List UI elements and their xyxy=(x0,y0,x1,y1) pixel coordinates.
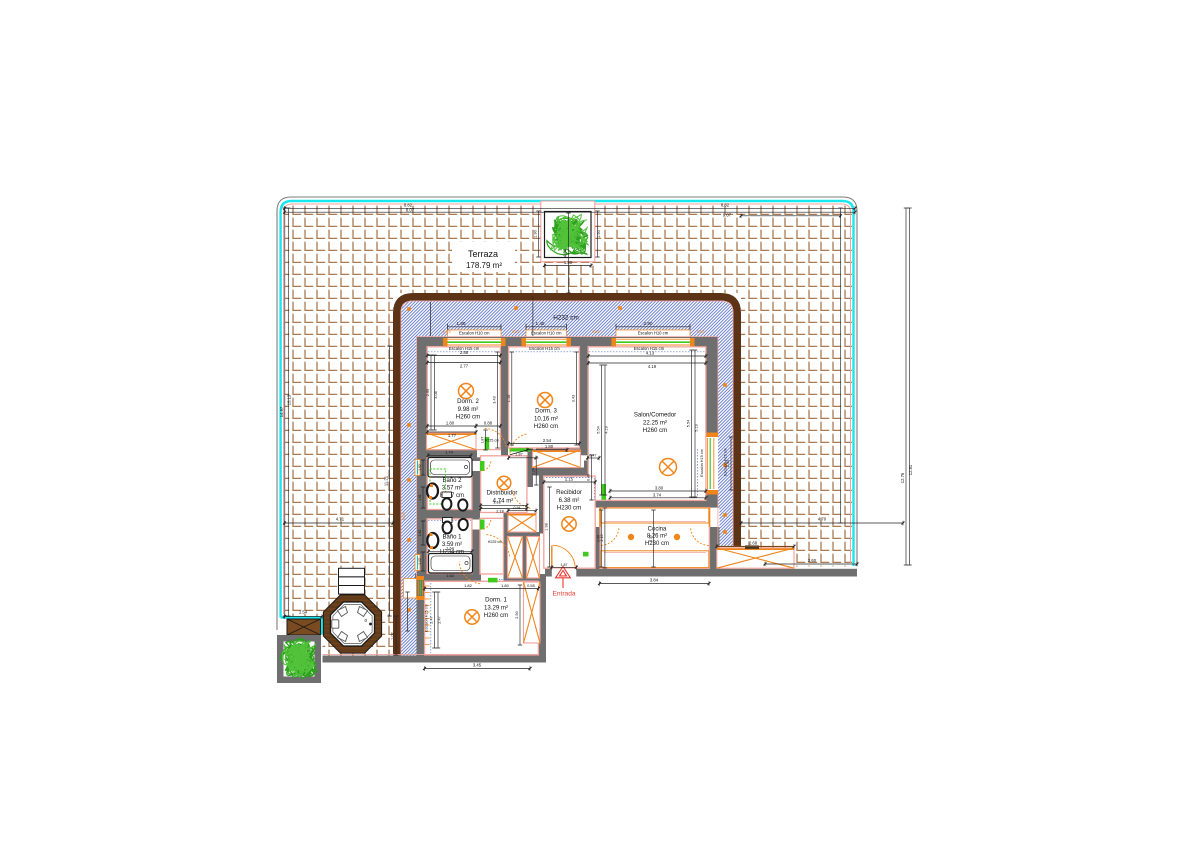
svg-text:3.45: 3.45 xyxy=(473,662,482,667)
svg-text:9.98 m²: 9.98 m² xyxy=(458,406,479,413)
svg-text:Escalon H15 cm: Escalon H15 cm xyxy=(425,604,429,632)
svg-text:1.87: 1.87 xyxy=(515,453,522,457)
svg-text:3.43: 3.43 xyxy=(493,396,497,403)
svg-text:22.25 m²: 22.25 m² xyxy=(643,419,667,426)
svg-text:5.19: 5.19 xyxy=(694,424,698,431)
svg-text:0.47: 0.47 xyxy=(590,453,597,457)
svg-text:1.92: 1.92 xyxy=(418,464,422,471)
svg-text:H260 cm: H260 cm xyxy=(643,427,667,434)
svg-text:4.71: 4.71 xyxy=(336,517,345,522)
svg-text:Entrada: Entrada xyxy=(552,591,575,598)
svg-text:2.18: 2.18 xyxy=(496,510,503,514)
svg-text:4.13: 4.13 xyxy=(646,350,655,355)
svg-text:EC5: EC5 xyxy=(401,511,406,520)
svg-text:3.80: 3.80 xyxy=(655,485,664,490)
svg-text:Escalon H10 cm: Escalon H10 cm xyxy=(638,331,669,336)
svg-text:9.07: 9.07 xyxy=(723,213,732,218)
svg-text:EC5: EC5 xyxy=(592,329,601,334)
svg-text:1.90: 1.90 xyxy=(597,230,601,237)
svg-text:1.87: 1.87 xyxy=(561,563,568,567)
svg-text:2.95: 2.95 xyxy=(426,389,430,396)
svg-text:H232 cm: H232 cm xyxy=(553,315,579,322)
svg-text:EC5: EC5 xyxy=(443,329,452,334)
svg-text:178.79 m²: 178.79 m² xyxy=(466,261,502,270)
svg-text:Terraza: Terraza xyxy=(468,249,498,259)
svg-text:2.90: 2.90 xyxy=(644,321,653,326)
svg-text:3.57 m²: 3.57 m² xyxy=(442,486,462,492)
svg-text:1.92: 1.92 xyxy=(418,530,422,537)
svg-text:Baño 1: Baño 1 xyxy=(442,535,462,541)
svg-text:10.16 m²: 10.16 m² xyxy=(534,415,558,422)
svg-text:6.38 m²: 6.38 m² xyxy=(559,497,580,504)
svg-text:2.90: 2.90 xyxy=(726,460,730,467)
svg-text:Dorm. 2: Dorm. 2 xyxy=(457,398,479,405)
svg-text:0: 0 xyxy=(365,618,368,623)
svg-text:1.64: 1.64 xyxy=(446,547,453,551)
svg-text:5.54: 5.54 xyxy=(687,420,691,427)
svg-text:EC5: EC5 xyxy=(512,329,521,334)
svg-text:2.50: 2.50 xyxy=(515,611,519,618)
svg-text:1.90: 1.90 xyxy=(534,230,538,237)
svg-text:2.54: 2.54 xyxy=(543,438,552,443)
svg-text:5.54: 5.54 xyxy=(597,426,601,433)
svg-text:2.60: 2.60 xyxy=(808,558,817,563)
svg-text:1.61: 1.61 xyxy=(418,494,422,501)
svg-text:2.15: 2.15 xyxy=(649,535,653,542)
svg-text:1.74: 1.74 xyxy=(445,451,452,455)
svg-text:1.64: 1.64 xyxy=(446,574,453,578)
svg-text:1.80: 1.80 xyxy=(457,321,466,326)
svg-text:Escalon H10 cm: Escalon H10 cm xyxy=(459,331,490,336)
svg-text:Escalon H10 cm: Escalon H10 cm xyxy=(531,331,562,336)
svg-text:1.80: 1.80 xyxy=(545,444,554,449)
svg-text:H230 cm: H230 cm xyxy=(557,505,581,512)
svg-text:4.70: 4.70 xyxy=(818,517,827,522)
svg-text:1.80: 1.80 xyxy=(446,420,455,425)
svg-text:1.02: 1.02 xyxy=(391,632,395,639)
svg-text:1.80: 1.80 xyxy=(501,583,510,588)
svg-text:12.81: 12.81 xyxy=(908,464,913,475)
svg-text:4.19: 4.19 xyxy=(604,426,608,433)
svg-text:Salon/Comedor: Salon/Comedor xyxy=(634,412,676,419)
svg-text:2.88: 2.88 xyxy=(460,350,469,355)
svg-text:Escalon H15 cm: Escalon H15 cm xyxy=(700,449,704,477)
svg-text:1.54: 1.54 xyxy=(299,610,308,615)
svg-text:4.04: 4.04 xyxy=(563,248,568,257)
svg-text:13.29 m²: 13.29 m² xyxy=(484,604,508,611)
svg-text:1.80: 1.80 xyxy=(564,260,573,265)
svg-text:8.82: 8.82 xyxy=(721,203,730,208)
svg-text:2.15: 2.15 xyxy=(600,535,604,542)
svg-text:8.07: 8.07 xyxy=(406,208,415,213)
svg-text:Dorm. 3: Dorm. 3 xyxy=(535,408,557,415)
svg-text:1.16: 1.16 xyxy=(507,395,511,402)
svg-text:3.43: 3.43 xyxy=(572,395,576,402)
svg-text:3.84: 3.84 xyxy=(650,577,659,582)
svg-text:0.55: 0.55 xyxy=(527,583,536,588)
svg-text:Dorm. 1: Dorm. 1 xyxy=(485,597,507,604)
svg-text:12.76: 12.76 xyxy=(900,472,905,483)
svg-text:1.82: 1.82 xyxy=(464,583,473,588)
svg-text:1.40: 1.40 xyxy=(536,321,545,326)
svg-text:2.47: 2.47 xyxy=(437,616,441,623)
svg-text:0.29: 0.29 xyxy=(531,468,535,475)
svg-text:0.88: 0.88 xyxy=(484,420,493,425)
svg-text:2.47: 2.47 xyxy=(430,616,434,623)
svg-text:3.06: 3.06 xyxy=(434,391,438,398)
svg-text:4.19: 4.19 xyxy=(648,364,657,369)
svg-text:3.74: 3.74 xyxy=(653,492,662,497)
svg-text:1.02: 1.02 xyxy=(418,558,422,565)
svg-text:1.98: 1.98 xyxy=(545,523,549,530)
svg-text:Escalon H15 cm: Escalon H15 cm xyxy=(529,346,560,351)
svg-text:1.18: 1.18 xyxy=(493,501,500,505)
svg-text:14.97: 14.97 xyxy=(279,406,284,417)
svg-text:EC5: EC5 xyxy=(697,329,706,334)
svg-text:15.13: 15.13 xyxy=(287,394,292,405)
svg-text:0.94: 0.94 xyxy=(514,506,521,510)
svg-text:2.68: 2.68 xyxy=(749,540,758,545)
svg-text:2.77: 2.77 xyxy=(460,364,469,369)
svg-text:H225 cm: H225 cm xyxy=(485,439,499,443)
svg-text:0.48: 0.48 xyxy=(587,474,591,481)
svg-text:1.77: 1.77 xyxy=(448,433,457,438)
svg-text:H260 cm: H260 cm xyxy=(484,612,508,619)
svg-text:H260 cm: H260 cm xyxy=(456,414,480,421)
svg-text:H260 cm: H260 cm xyxy=(534,423,558,430)
svg-text:2.15: 2.15 xyxy=(565,476,574,481)
svg-text:Recibidor: Recibidor xyxy=(556,489,582,496)
svg-text:11.21: 11.21 xyxy=(384,475,389,486)
svg-text:H225 cm: H225 cm xyxy=(488,540,502,544)
svg-text:Cocina: Cocina xyxy=(648,527,667,533)
